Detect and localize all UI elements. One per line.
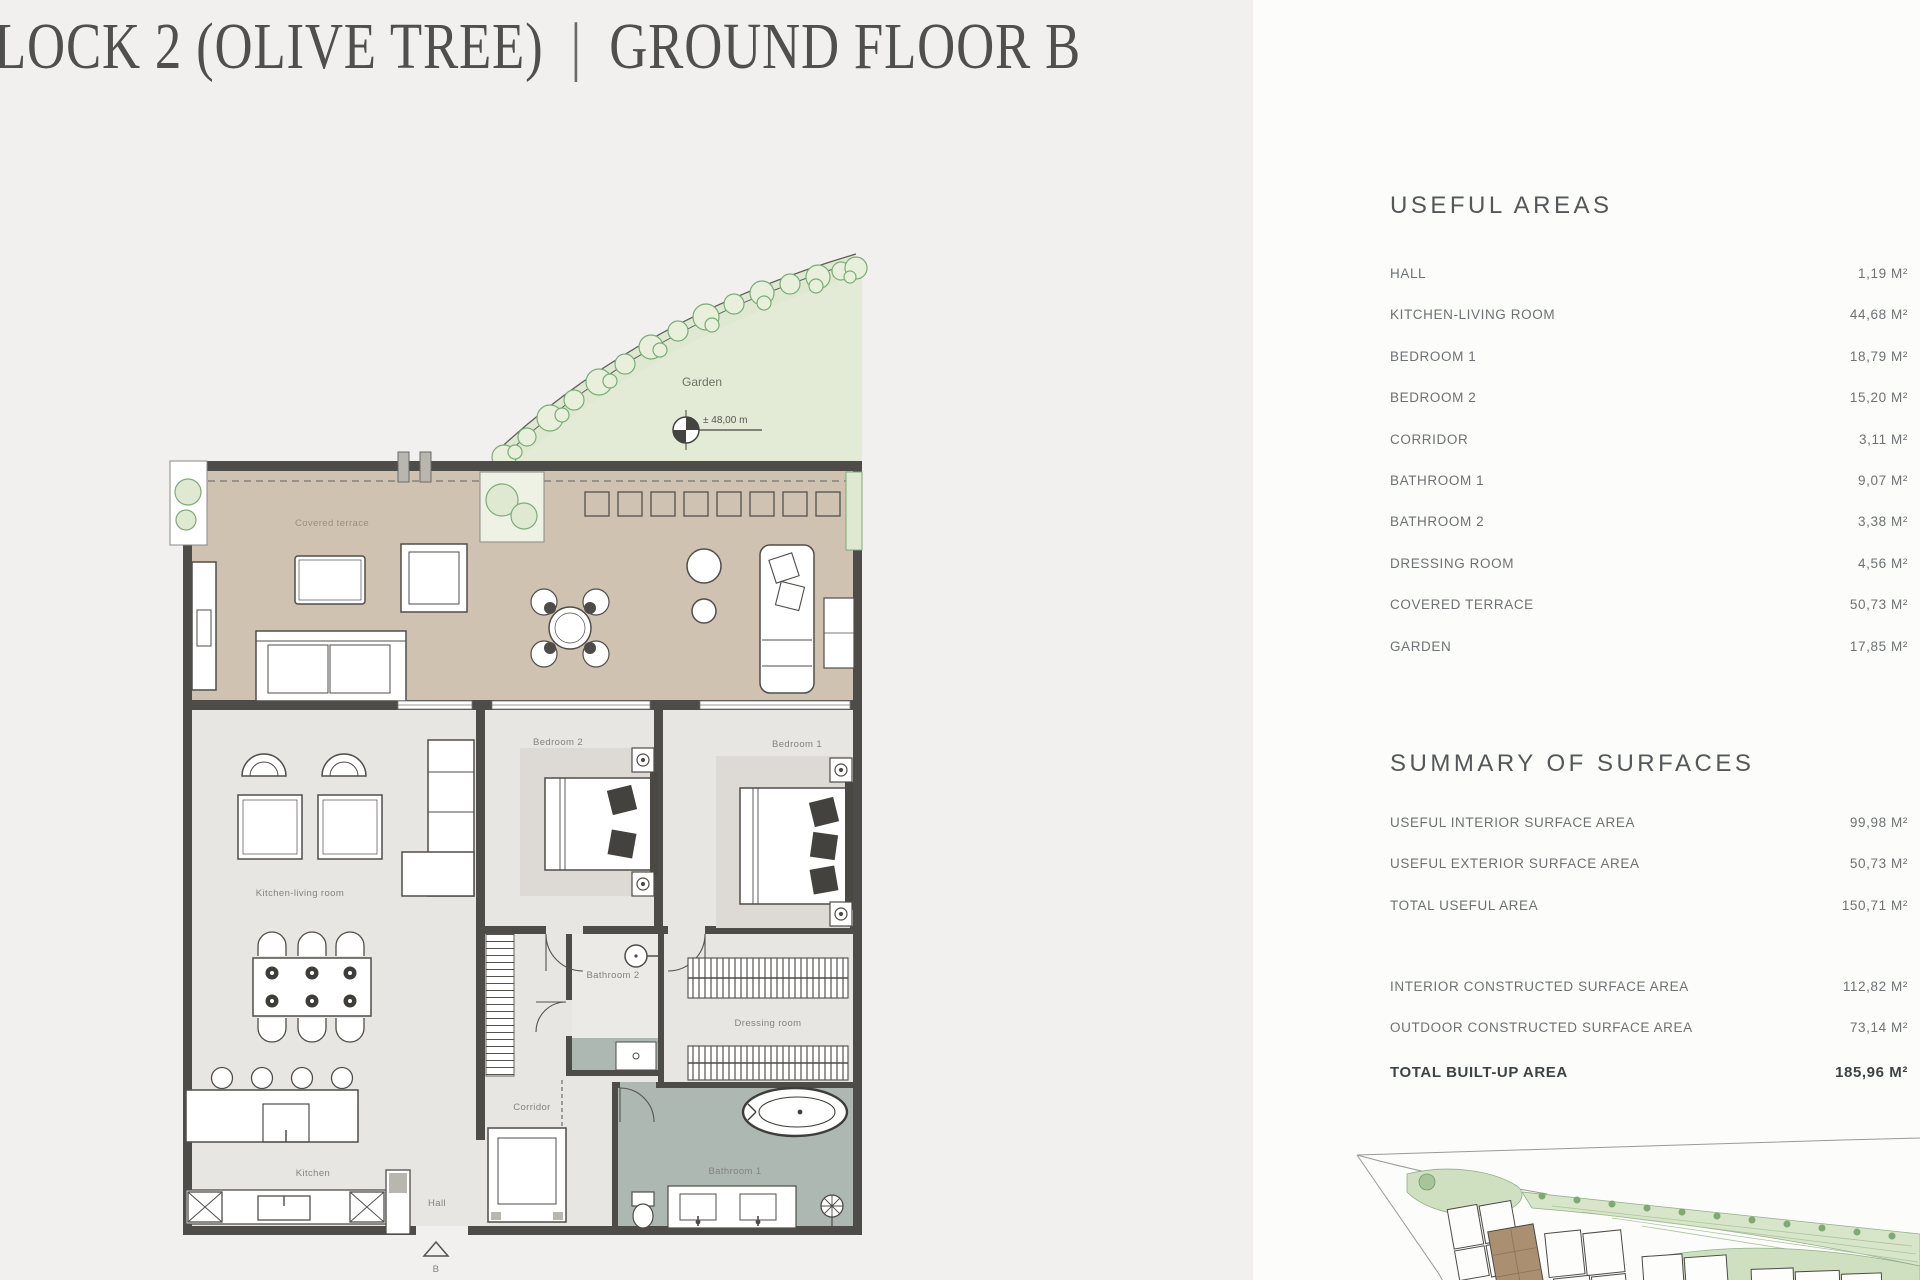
storage-unit-icon bbox=[488, 1128, 566, 1222]
highlighted-block bbox=[1488, 1224, 1545, 1280]
row-value: 50,73 M² bbox=[1850, 596, 1908, 613]
entrance-label: B bbox=[433, 1264, 440, 1275]
table-row: BEDROOM 118,79 M² bbox=[1390, 348, 1908, 389]
square-table-icon bbox=[238, 795, 302, 859]
bathroom-2-label: Bathroom 2 bbox=[586, 970, 639, 981]
row-value: 4,56 M² bbox=[1858, 555, 1908, 572]
row-label: KITCHEN-LIVING ROOM bbox=[1390, 306, 1555, 323]
bedroom-1: Bedroom 1 bbox=[716, 739, 853, 928]
table-row: TOTAL USEFUL AREA150,71 M² bbox=[1390, 897, 1908, 938]
row-label: BATHROOM 2 bbox=[1390, 513, 1484, 530]
floor-plan-drawing: Garden ± 48,00 m Covered terrace bbox=[130, 200, 910, 1280]
total-value: 185,96 M² bbox=[1835, 1064, 1908, 1081]
table-row: BATHROOM 23,38 M² bbox=[1390, 513, 1908, 554]
row-value: 17,85 M² bbox=[1850, 638, 1908, 655]
row-label: USEFUL INTERIOR SURFACE AREA bbox=[1390, 814, 1635, 831]
row-value: 15,20 M² bbox=[1850, 389, 1908, 406]
row-label: COVERED TERRACE bbox=[1390, 596, 1534, 613]
total-built-up-row: TOTAL BUILT-UP AREA 185,96 M² bbox=[1390, 1064, 1908, 1081]
info-panel: USEFUL AREAS HALL1,19 M² KITCHEN-LIVING … bbox=[1253, 0, 1920, 1280]
site-map-thumbnail bbox=[1352, 1134, 1920, 1280]
constructed-table: INTERIOR CONSTRUCTED SURFACE AREA112,82 … bbox=[1390, 978, 1908, 1061]
row-value: 3,11 M² bbox=[1859, 431, 1908, 448]
table-row: GARDEN17,85 M² bbox=[1390, 638, 1908, 679]
bed-icon bbox=[545, 772, 658, 876]
garden-level-label: ± 48,00 m bbox=[703, 415, 747, 426]
bedroom-2-label: Bedroom 2 bbox=[533, 737, 583, 748]
garden-area: Garden ± 48,00 m bbox=[492, 254, 867, 469]
windows bbox=[398, 701, 850, 709]
table-row: INTERIOR CONSTRUCTED SURFACE AREA112,82 … bbox=[1390, 978, 1908, 1019]
covered-terrace-label: Covered terrace bbox=[295, 518, 369, 529]
garden-label: Garden bbox=[682, 375, 722, 389]
table-row: BEDROOM 215,20 M² bbox=[1390, 389, 1908, 430]
row-value: 99,98 M² bbox=[1850, 814, 1908, 831]
row-label: BATHROOM 1 bbox=[1390, 472, 1484, 489]
terrace-cabinet-icon bbox=[824, 598, 854, 668]
row-value: 9,07 M² bbox=[1858, 472, 1908, 489]
bed-icon bbox=[740, 782, 853, 910]
dressing-room-label: Dressing room bbox=[735, 1018, 802, 1029]
table-row: DRESSING ROOM4,56 M² bbox=[1390, 555, 1908, 596]
table-row: HALL1,19 M² bbox=[1390, 265, 1908, 306]
bathroom-1-label: Bathroom 1 bbox=[708, 1166, 761, 1177]
sofa-icon bbox=[256, 631, 406, 701]
entrance-marker: B bbox=[424, 1242, 448, 1275]
hall-label: Hall bbox=[428, 1198, 446, 1209]
title-floor: GROUND FLOOR B bbox=[609, 10, 1081, 83]
shower-tray-icon bbox=[616, 1042, 656, 1070]
table-row: CORRIDOR3,11 M² bbox=[1390, 431, 1908, 472]
brochure-page: LOCK 2 (OLIVE TREE)|GROUND FLOOR B bbox=[0, 0, 1920, 1280]
square-table-icon bbox=[318, 795, 382, 859]
row-label: HALL bbox=[1390, 265, 1426, 282]
title-divider: | bbox=[571, 10, 582, 83]
row-value: 3,38 M² bbox=[1858, 513, 1908, 530]
row-value: 18,79 M² bbox=[1850, 348, 1908, 365]
bathtub-icon bbox=[743, 1088, 847, 1136]
row-value: 44,68 M² bbox=[1850, 306, 1908, 323]
row-value: 150,71 M² bbox=[1842, 897, 1908, 914]
page-title: LOCK 2 (OLIVE TREE)|GROUND FLOOR B bbox=[0, 14, 1081, 80]
row-value: 112,82 M² bbox=[1843, 978, 1908, 995]
summary-table: USEFUL INTERIOR SURFACE AREA99,98 M² USE… bbox=[1390, 814, 1908, 938]
row-label: USEFUL EXTERIOR SURFACE AREA bbox=[1390, 855, 1640, 872]
table-row: OUTDOOR CONSTRUCTED SURFACE AREA73,14 M² bbox=[1390, 1019, 1908, 1060]
coffee-table-icon bbox=[295, 556, 365, 604]
table-row: KITCHEN-LIVING ROOM44,68 M² bbox=[1390, 306, 1908, 347]
row-value: 50,73 M² bbox=[1850, 855, 1908, 872]
toilet-icon bbox=[632, 1192, 654, 1228]
table-row: USEFUL EXTERIOR SURFACE AREA50,73 M² bbox=[1390, 855, 1908, 896]
table-row: COVERED TERRACE50,73 M² bbox=[1390, 596, 1908, 637]
row-label: CORRIDOR bbox=[1390, 431, 1468, 448]
dining-table-icon bbox=[253, 958, 371, 1016]
row-label: OUTDOOR CONSTRUCTED SURFACE AREA bbox=[1390, 1019, 1693, 1036]
row-label: GARDEN bbox=[1390, 638, 1451, 655]
table-row: BATHROOM 19,07 M² bbox=[1390, 472, 1908, 513]
armchair-icon bbox=[401, 544, 467, 612]
row-label: BEDROOM 1 bbox=[1390, 348, 1476, 365]
bedroom-1-label: Bedroom 1 bbox=[772, 739, 822, 750]
site-map-drawing bbox=[1352, 1134, 1920, 1280]
row-label: INTERIOR CONSTRUCTED SURFACE AREA bbox=[1390, 978, 1689, 995]
row-label: DRESSING ROOM bbox=[1390, 555, 1514, 572]
vanity-icon bbox=[668, 1186, 796, 1228]
useful-areas-table: HALL1,19 M² KITCHEN-LIVING ROOM44,68 M² … bbox=[1390, 265, 1908, 679]
bedroom-2: Bedroom 2 bbox=[520, 737, 658, 896]
lounge-chaise-icon bbox=[760, 545, 814, 693]
corridor-label: Corridor bbox=[513, 1102, 551, 1113]
floor-plan: Garden ± 48,00 m Covered terrace bbox=[130, 200, 910, 1280]
row-label: TOTAL USEFUL AREA bbox=[1390, 897, 1538, 914]
kitchen-label: Kitchen bbox=[296, 1168, 331, 1179]
title-block: LOCK 2 (OLIVE TREE) bbox=[0, 10, 543, 83]
table-row: USEFUL INTERIOR SURFACE AREA99,98 M² bbox=[1390, 814, 1908, 855]
total-label: TOTAL BUILT-UP AREA bbox=[1390, 1064, 1568, 1081]
useful-areas-heading: USEFUL AREAS bbox=[1390, 192, 1613, 220]
kitchen-living-label: Kitchen-living room bbox=[256, 888, 344, 899]
tv-unit-icon bbox=[192, 562, 216, 690]
summary-heading: SUMMARY OF SURFACES bbox=[1390, 750, 1754, 778]
row-label: BEDROOM 2 bbox=[1390, 389, 1476, 406]
kitchen-island-icon bbox=[186, 1090, 358, 1142]
row-value: 73,14 M² bbox=[1850, 1019, 1908, 1036]
row-value: 1,19 M² bbox=[1858, 265, 1908, 282]
